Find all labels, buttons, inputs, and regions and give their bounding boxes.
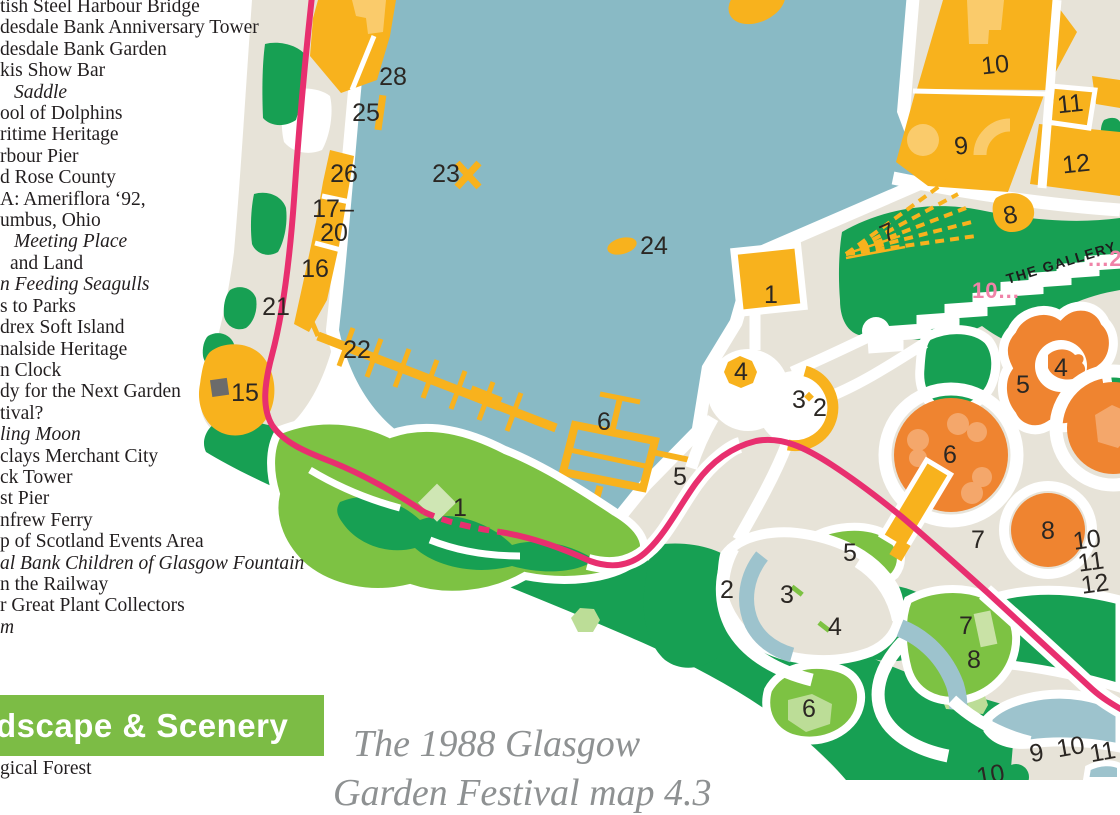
legend-item: tish Steel Harbour Bridge	[0, 0, 300, 17]
map-label-4: 4	[734, 358, 748, 386]
legend-item: ck Tower	[0, 467, 300, 488]
legend-item: kis Show Bar	[0, 60, 300, 81]
map-label-25: 25	[352, 99, 380, 127]
map-label-1: 1	[453, 494, 467, 522]
legend-item: desdale Bank Anniversary Tower	[0, 17, 300, 38]
map-label-8: 8	[1041, 517, 1055, 545]
legend-item: umbus, Ohio	[0, 210, 300, 231]
legend-item: ritime Heritage	[0, 124, 300, 145]
map-label-12: 12	[1061, 149, 1092, 180]
map-label-3: 3	[792, 386, 806, 414]
legend-item: drex Soft Island	[0, 317, 300, 338]
legend-item: clays Merchant City	[0, 446, 300, 467]
map-label-1: 1	[764, 281, 778, 309]
map-label-22: 22	[343, 336, 371, 364]
map-label-20: 20	[320, 219, 348, 247]
pink-route-label-left: 10...	[972, 278, 1020, 303]
legend-item: Saddle	[0, 82, 300, 103]
legend-item: n the Railway	[0, 574, 300, 595]
map-label-5: 5	[843, 539, 857, 567]
legend-item: dy for the Next Garden	[0, 381, 300, 402]
section-banner-title: dscape & Scenery	[0, 695, 288, 756]
map-label-2: 2	[813, 394, 827, 422]
map-label-10: 10	[1054, 731, 1086, 763]
legend-item: s to Parks	[0, 296, 300, 317]
map-label-7: 7	[959, 612, 973, 640]
map-label-3: 3	[780, 581, 794, 609]
map-label-7: 7	[971, 526, 985, 554]
legend-item: Meeting Place	[0, 231, 300, 252]
legend-item-below-banner: gical Forest	[0, 758, 92, 780]
map-label-5: 5	[1016, 371, 1030, 399]
map-label-4: 4	[828, 613, 842, 641]
map-label-16: 16	[301, 255, 329, 283]
caption-line2: Garden Festival map 4.3	[333, 771, 712, 815]
legend-item: d Rose County	[0, 167, 300, 188]
section-banner: dscape & Scenery	[0, 695, 324, 756]
legend-item: tival?	[0, 403, 300, 424]
legend-item: and Land	[0, 253, 300, 274]
map-label-12: 12	[1079, 568, 1110, 600]
map-label-10: 10	[974, 759, 1006, 780]
map-label-26: 26	[330, 160, 358, 188]
map-label-10: 10	[980, 50, 1011, 81]
map-label-11: 11	[1056, 89, 1085, 120]
building-9-circle	[907, 124, 939, 156]
map-label-23: 23	[432, 160, 460, 188]
legend-item: p of Scotland Events Area	[0, 531, 300, 552]
legend-item: desdale Bank Garden	[0, 39, 300, 60]
map-label-9: 9	[953, 131, 970, 160]
legend-item: m	[0, 617, 300, 638]
caption-line1: The 1988 Glasgow	[353, 722, 640, 766]
legend-item: nfrew Ferry	[0, 510, 300, 531]
legend-item: r Great Plant Collectors	[0, 595, 300, 616]
pink-route-label-right: ...25	[1088, 246, 1120, 271]
map-label-28: 28	[379, 63, 407, 91]
legend-item: ool of Dolphins	[0, 103, 300, 124]
legend-item: al Bank Children of Glasgow Fountain	[0, 553, 300, 574]
map-label-5: 5	[673, 463, 687, 491]
legend-item: nalside Heritage	[0, 339, 300, 360]
map-label-11: 11	[1087, 736, 1117, 768]
legend-item: rbour Pier	[0, 146, 300, 167]
legend-item: A: Ameriflora ‘92,	[0, 189, 300, 210]
map-label-6: 6	[802, 695, 816, 723]
map-label-2: 2	[720, 576, 734, 604]
map-label-4: 4	[1054, 354, 1068, 382]
road	[913, 91, 1048, 94]
legend-item: ling Moon	[0, 424, 300, 445]
map-label-24: 24	[640, 232, 668, 260]
legend-item: st Pier	[0, 488, 300, 509]
legend-list: tish Steel Harbour Bridgedesdale Bank An…	[0, 0, 300, 638]
legend-item: n Clock	[0, 360, 300, 381]
legend-item: n Feeding Seagulls	[0, 274, 300, 295]
map-label-6: 6	[597, 408, 611, 436]
map-label-8: 8	[967, 646, 981, 674]
map-label-6: 6	[943, 441, 957, 469]
